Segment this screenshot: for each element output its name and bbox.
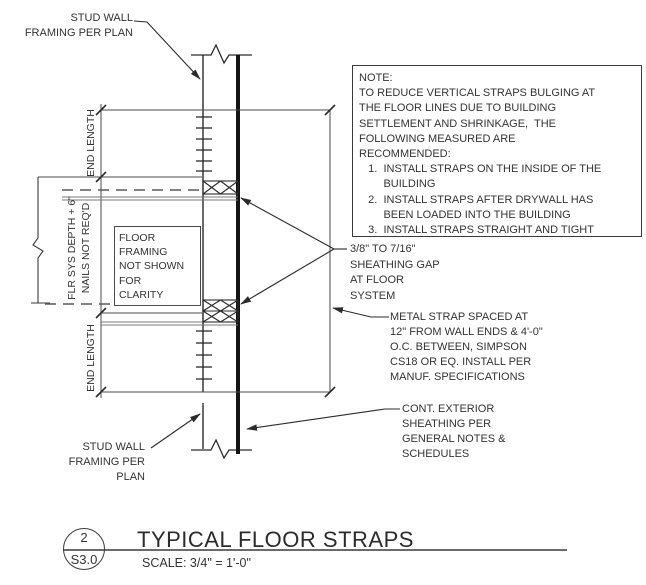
sheet-number: S3.0: [63, 552, 105, 567]
detail-drawing-sheet: STUD WALL FRAMING PER PLAN STUD WALL FRA…: [0, 0, 646, 585]
upper-strap-cross: [203, 181, 238, 194]
end-length-top-label: END LENGTH: [84, 109, 98, 177]
stud-wall-top-label: STUD WALL FRAMING PER PLAN: [0, 11, 133, 41]
floor-framing-note-box: FLOOR FRAMING NOT SHOWN FOR CLARITY: [114, 226, 201, 306]
end-length-bottom-label: END LENGTH: [84, 324, 98, 392]
lower-strap-cross: [203, 300, 238, 322]
floor-system-depth-label: FLR SYS DEPTH + 6" NAILS NOT REQ'D: [65, 196, 93, 300]
floor-depth-bracket: [31, 177, 50, 303]
detail-scale: SCALE: 3/4" = 1'-0": [142, 556, 251, 570]
wall-break-bottom: [191, 440, 252, 458]
stud-wall-bottom-label: STUD WALL FRAMING PER PLAN: [45, 440, 145, 485]
metal-strap-label: METAL STRAP SPACED AT 12" FROM WALL ENDS…: [390, 310, 543, 385]
detail-number: 2: [63, 530, 105, 545]
wall-break-top: [191, 45, 252, 63]
cont-sheathing-label: CONT. EXTERIOR SHEATHING PER GENERAL NOT…: [402, 402, 506, 462]
detail-title: TYPICAL FLOOR STRAPS: [137, 527, 414, 553]
sheathing-gap-label: 3/8" TO 7/16" SHEATHING GAP AT FLOOR SYS…: [350, 242, 440, 304]
general-note-box: NOTE: TO REDUCE VERTICAL STRAPS BULGING …: [352, 65, 642, 237]
